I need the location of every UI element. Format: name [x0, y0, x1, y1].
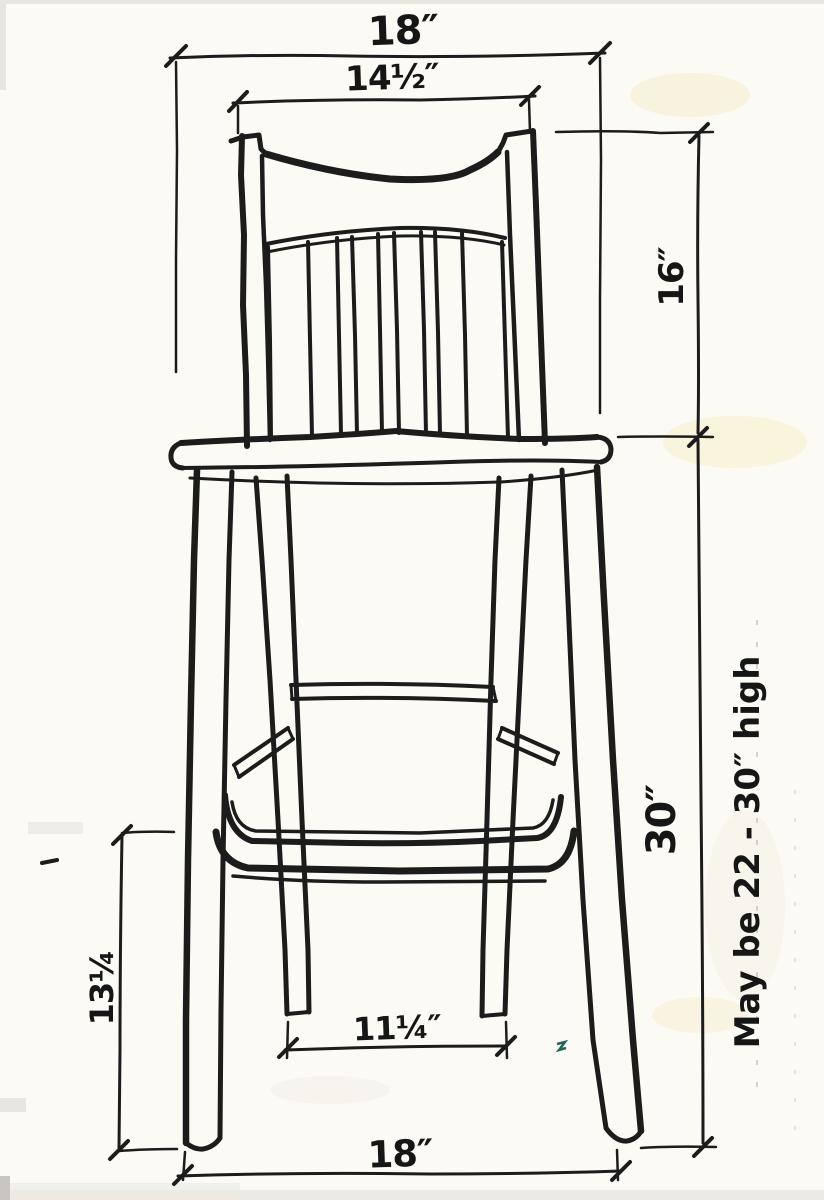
- front-left-leg-outer: [186, 470, 197, 1143]
- height-range-note: May be 22 - 30″ high: [728, 656, 768, 1049]
- backrest: [231, 131, 545, 446]
- backrest-right-stile: [533, 131, 545, 443]
- side-braces: [234, 728, 558, 777]
- dim-label-back-height: 16″: [652, 247, 692, 307]
- seat: [171, 431, 611, 484]
- scanned-sketch-page: { "sketch": { "dimensions": { "top_width…: [0, 0, 824, 1200]
- backrest-spindles: [268, 232, 508, 438]
- dim-label-back-width: 14½″: [344, 56, 439, 99]
- dim-label-stretcher-height: 13¼: [83, 951, 121, 1026]
- seat-top-edge: [181, 431, 597, 443]
- stray-pen-dash: [42, 860, 57, 863]
- backrest-left-stile: [241, 136, 247, 446]
- teal-speck: [557, 1042, 566, 1050]
- crest-rail: [266, 152, 498, 180]
- middle-stretcher: [291, 684, 493, 687]
- rear-legs: [256, 476, 531, 1016]
- paper-background: 18″ 14½″ 16″ 30″ May be 22 - 30″ high 13…: [0, 0, 824, 1200]
- dim-label-top-width: 18″: [367, 7, 439, 55]
- dim-label-seat-height: 30″: [639, 785, 685, 856]
- dim-label-bottom-width: 18″: [367, 1131, 433, 1176]
- dim-label-rear-feet-span: 11¼″: [352, 1007, 441, 1048]
